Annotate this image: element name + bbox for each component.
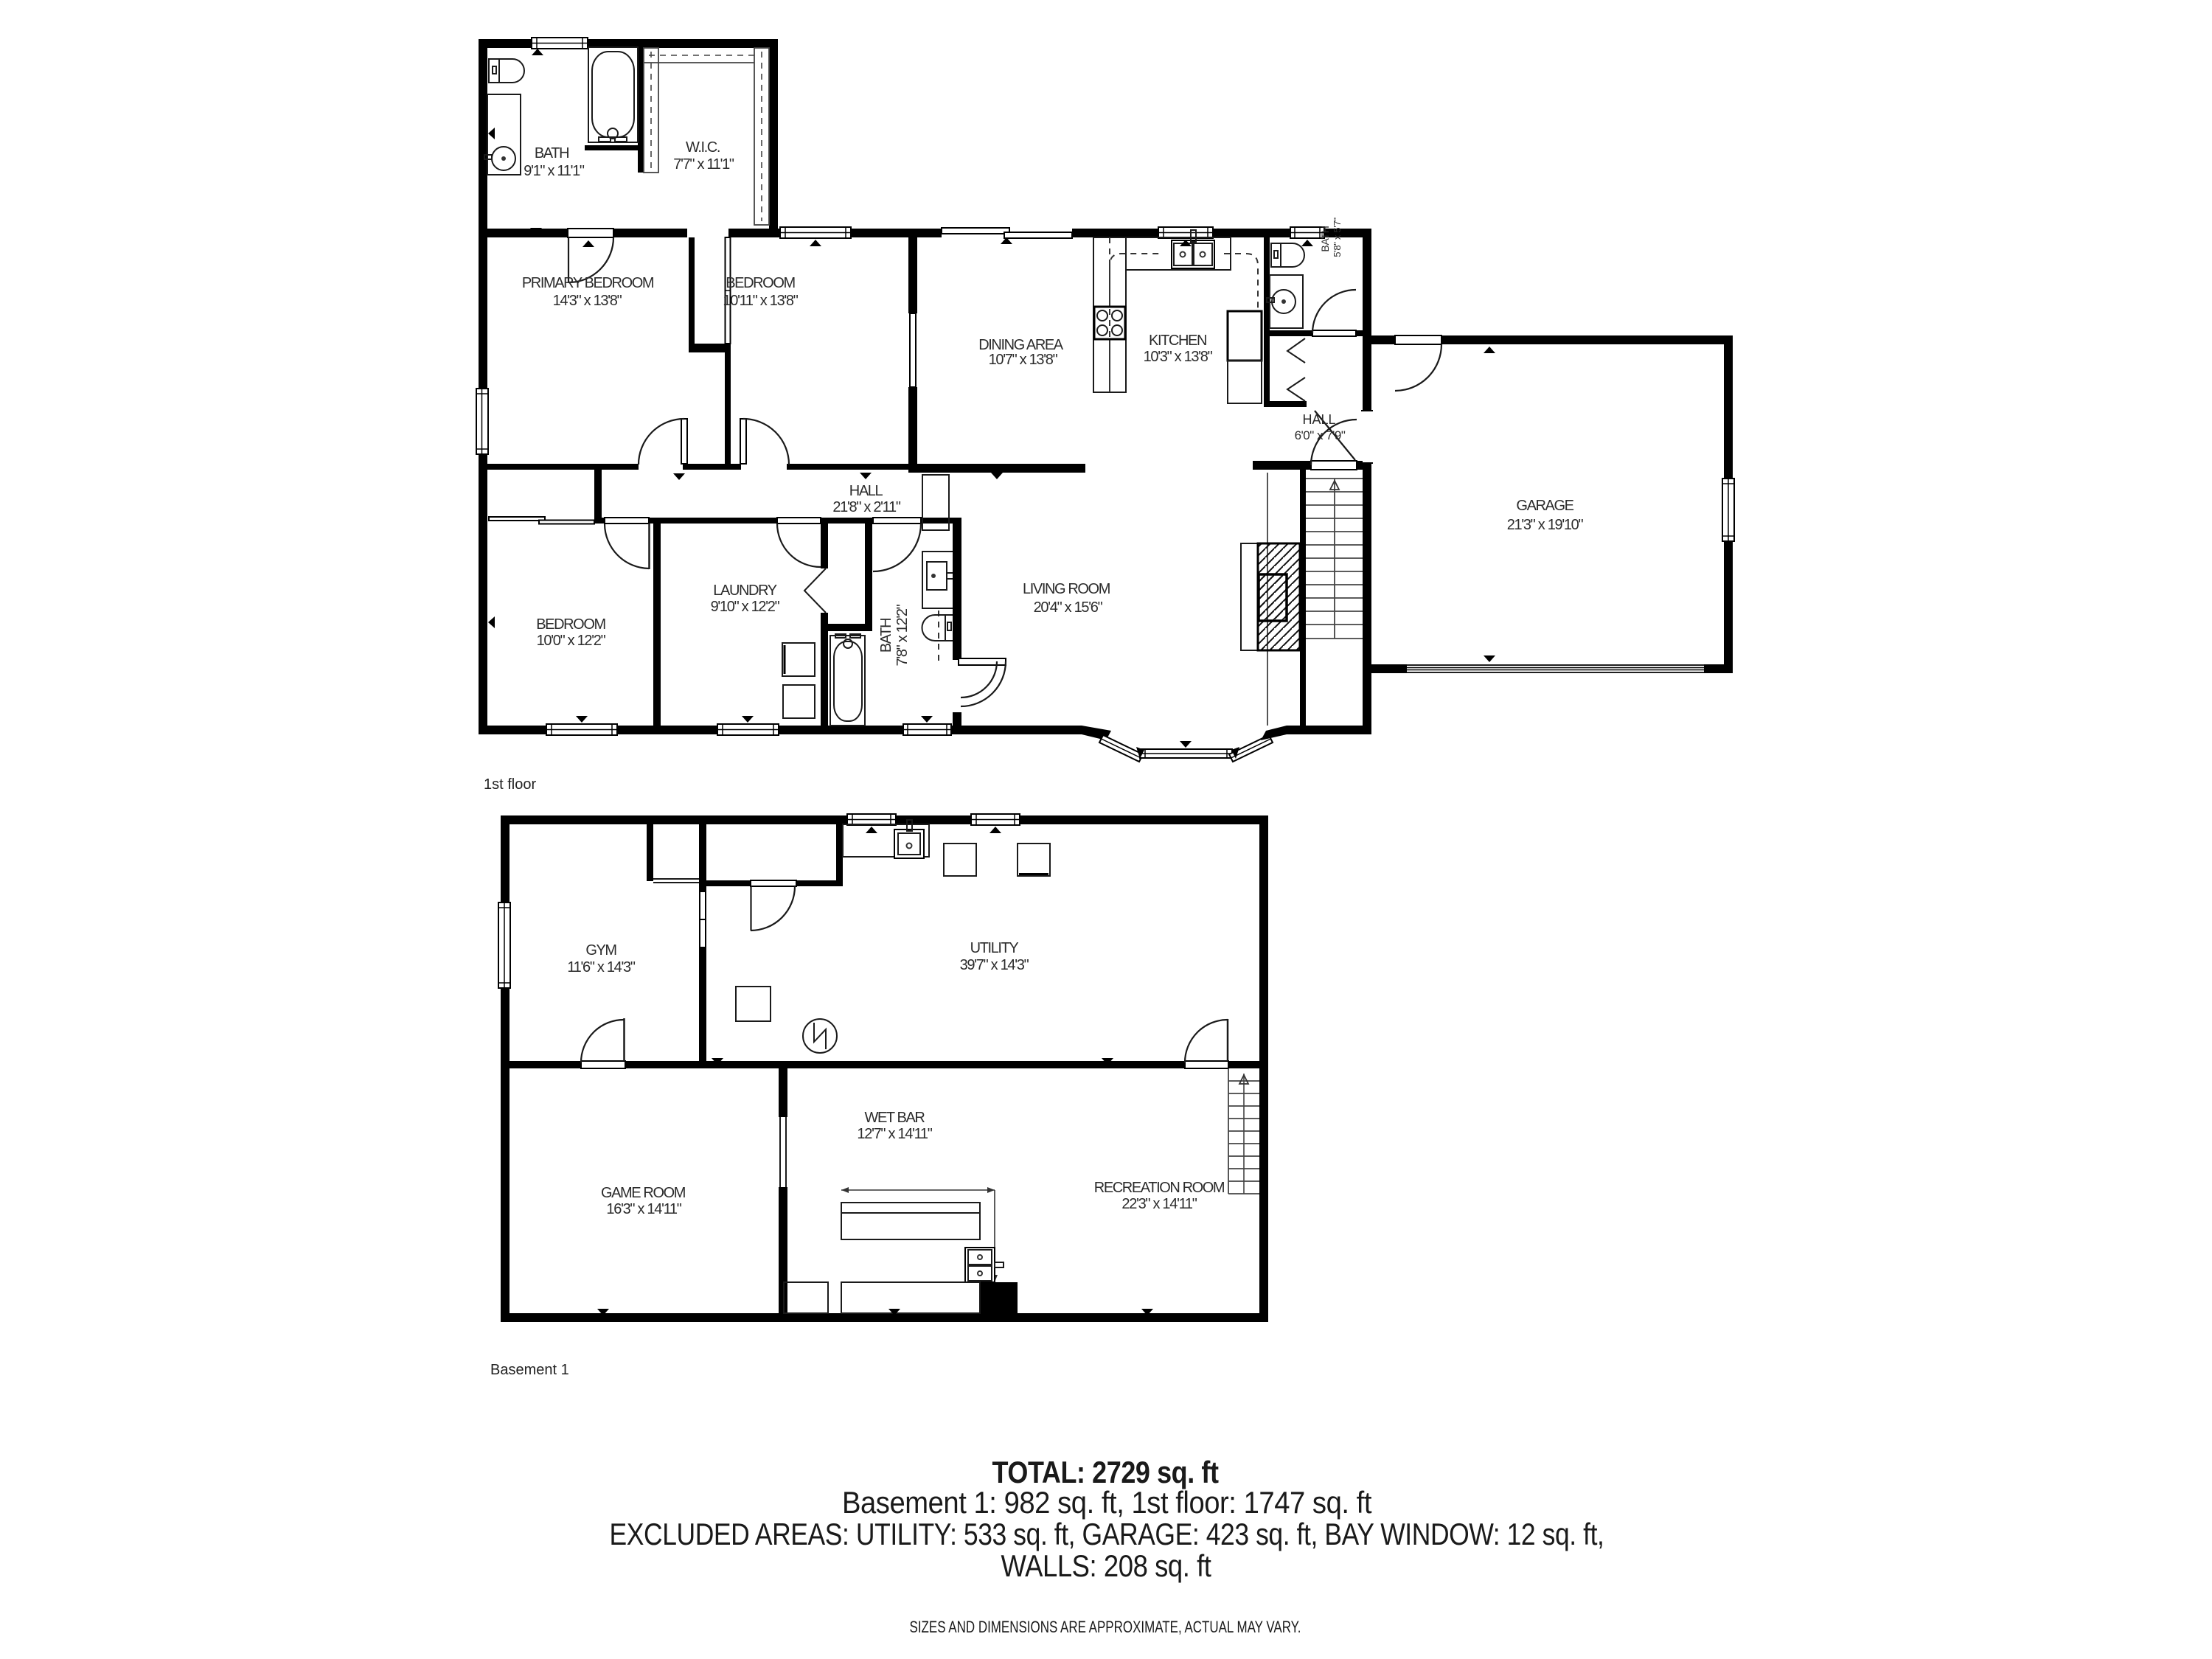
svg-text:9'10" x 12'2": 9'10" x 12'2" <box>711 599 780 615</box>
svg-text:7'8" x 12'2": 7'8" x 12'2" <box>894 604 911 666</box>
svg-text:39'7" x 14'3": 39'7" x 14'3" <box>960 957 1029 973</box>
svg-text:GYM: GYM <box>585 942 616 959</box>
svg-text:DINING AREA: DINING AREA <box>978 337 1064 353</box>
svg-text:BEDROOM: BEDROOM <box>536 616 605 633</box>
svg-text:21'8" x 2'11": 21'8" x 2'11" <box>832 499 901 515</box>
svg-text:11'6" x 14'3": 11'6" x 14'3" <box>567 959 636 975</box>
svg-text:TOTAL: 2729 sq. ft: TOTAL: 2729 sq. ft <box>992 1455 1219 1489</box>
svg-text:7'7" x 11'1": 7'7" x 11'1" <box>673 156 734 173</box>
svg-text:GAME ROOM: GAME ROOM <box>601 1185 686 1201</box>
svg-text:GARAGE: GARAGE <box>1516 498 1573 514</box>
svg-text:W.I.C.: W.I.C. <box>686 139 720 156</box>
svg-text:KITCHEN: KITCHEN <box>1149 333 1206 349</box>
svg-text:EXCLUDED AREAS: UTILITY: 533 s: EXCLUDED AREAS: UTILITY: 533 sq. ft, GAR… <box>610 1517 1604 1551</box>
svg-text:BATH: BATH <box>535 145 568 161</box>
svg-text:16'3" x 14'11": 16'3" x 14'11" <box>606 1201 681 1217</box>
svg-text:9'1" x 11'1": 9'1" x 11'1" <box>524 163 585 179</box>
svg-text:BATH: BATH <box>878 619 894 653</box>
svg-text:14'3" x 13'8": 14'3" x 13'8" <box>553 293 622 309</box>
svg-text:HALL: HALL <box>1302 412 1335 427</box>
svg-text:WET BAR: WET BAR <box>865 1110 925 1126</box>
svg-text:HALL: HALL <box>849 483 883 499</box>
svg-text:WALLS: 208 sq. ft: WALLS: 208 sq. ft <box>1001 1548 1212 1583</box>
svg-text:10'11" x 13'8": 10'11" x 13'8" <box>723 293 798 309</box>
svg-text:BATH: BATH <box>1319 226 1331 251</box>
svg-text:22'3" x 14'11": 22'3" x 14'11" <box>1121 1196 1197 1212</box>
svg-text:1st floor: 1st floor <box>484 776 536 793</box>
svg-text:10'0" x 12'2": 10'0" x 12'2" <box>537 633 606 649</box>
svg-text:Basement 1: 982 sq. ft, 1st fl: Basement 1: 982 sq. ft, 1st floor: 1747 … <box>842 1485 1372 1520</box>
svg-text:20'4" x 15'6": 20'4" x 15'6" <box>1034 599 1103 616</box>
svg-text:21'3" x 19'10": 21'3" x 19'10" <box>1507 517 1584 533</box>
svg-text:RECREATION ROOM: RECREATION ROOM <box>1094 1180 1225 1196</box>
svg-text:Basement 1: Basement 1 <box>490 1362 569 1378</box>
svg-text:6'0" x 7'9": 6'0" x 7'9" <box>1295 428 1346 442</box>
svg-text:LAUNDRY: LAUNDRY <box>713 582 776 599</box>
svg-text:SIZES AND DIMENSIONS ARE APPRO: SIZES AND DIMENSIONS ARE APPROXIMATE, AC… <box>910 1618 1301 1636</box>
svg-text:5'8" x 5'7": 5'8" x 5'7" <box>1332 218 1343 257</box>
svg-text:10'3" x 13'8": 10'3" x 13'8" <box>1144 349 1213 365</box>
svg-text:BEDROOM: BEDROOM <box>726 275 795 291</box>
svg-text:12'7" x 14'11": 12'7" x 14'11" <box>857 1126 932 1142</box>
svg-text:10'7" x 13'8": 10'7" x 13'8" <box>989 352 1058 368</box>
svg-text:LIVING ROOM: LIVING ROOM <box>1023 581 1110 597</box>
svg-text:PRIMARY BEDROOM: PRIMARY BEDROOM <box>522 275 654 291</box>
svg-text:UTILITY: UTILITY <box>970 940 1019 956</box>
